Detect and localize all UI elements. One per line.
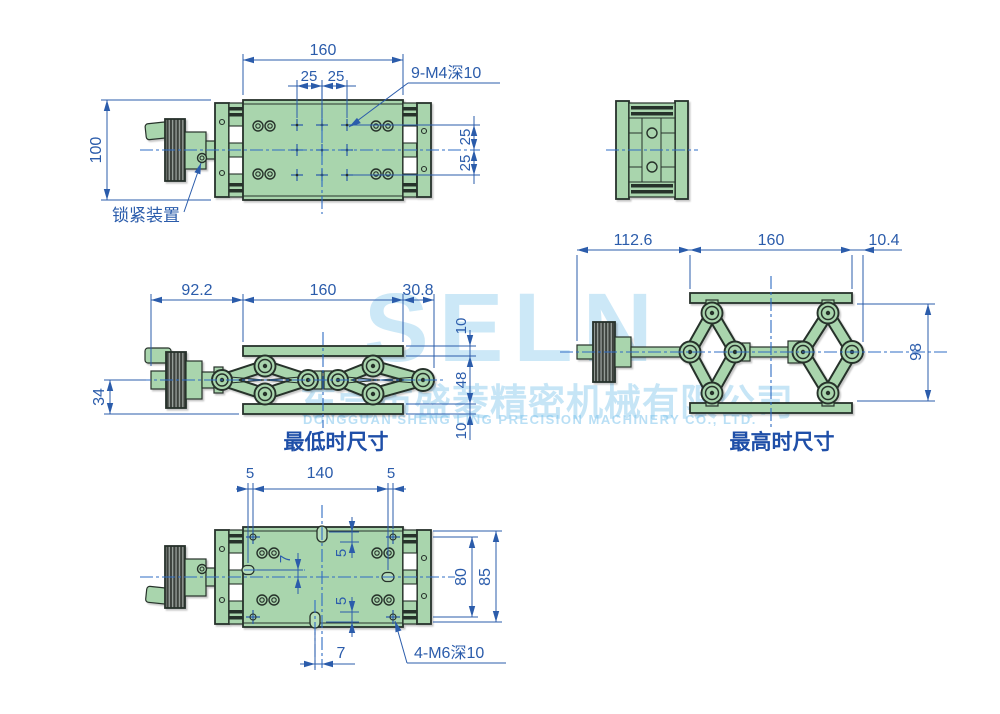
drawing-canvas: SELN 东莞市盛菱精密机械有限公司 DONGGUAN SHENG LING P… [0,0,1000,714]
callout-text: 4-M6深10 [414,644,484,662]
view-highest: 112.6 160 10.4 98 最高时尺寸 [560,232,948,454]
dim-text: 25 [457,155,474,172]
dim-text: 85 [477,568,494,586]
dim-text: 5 [333,549,350,557]
dim-text: 10 [453,423,470,440]
dim-text: 98 [908,343,925,361]
dim-text: 160 [758,232,785,249]
dim-text: 140 [307,465,334,482]
dim-text: 80 [453,568,470,586]
dim-text: 5 [246,465,254,482]
view-bottom: 5 140 5 7 5 5 [140,465,506,670]
view-lowest: 92.2 160 30.8 34 10 48 10 [91,282,476,454]
technical-drawing: 160 25 25 100 [0,0,1000,714]
caption-highest: 最高时尺寸 [730,430,835,454]
dim-text: 25 [457,129,474,146]
dim-text: 160 [310,42,337,59]
dim-text: 25 [328,68,345,85]
callout-text: 9-M4深10 [411,64,481,82]
dim-text: 30.8 [402,282,433,299]
view-end [606,101,698,199]
locking-screw [198,565,207,574]
locking-screw [198,154,207,163]
dim-text: 112.6 [614,232,653,249]
dim-text: 5 [333,597,350,605]
dim-text: 48 [453,372,470,389]
dim-text: 7 [277,555,294,563]
dim-bottom-7: 7 [300,632,355,670]
dim-text: 5 [387,465,395,482]
caption-lowest: 最低时尺寸 [284,430,389,454]
dim-text: 10 [453,318,470,335]
dim-top-160: 160 [243,42,403,95]
dim-text: 160 [310,282,337,299]
dim-bottom-80: 80 [433,537,478,617]
dim-highest-top: 112.6 160 10.4 [577,232,902,342]
view-top: 160 25 25 100 [88,42,500,225]
dim-text: 7 [337,645,346,662]
dim-text: 34 [91,388,108,406]
dim-text: 100 [88,137,105,164]
callout-text: 锁紧装置 [112,206,180,225]
callout-lock: 锁紧装置 [112,163,201,225]
highest-part [577,293,863,413]
dim-text: 25 [301,68,318,85]
dim-text: 92.2 [181,282,212,299]
dim-text: 10.4 [868,232,899,249]
callout-m6: 4-M6深10 [395,621,506,663]
